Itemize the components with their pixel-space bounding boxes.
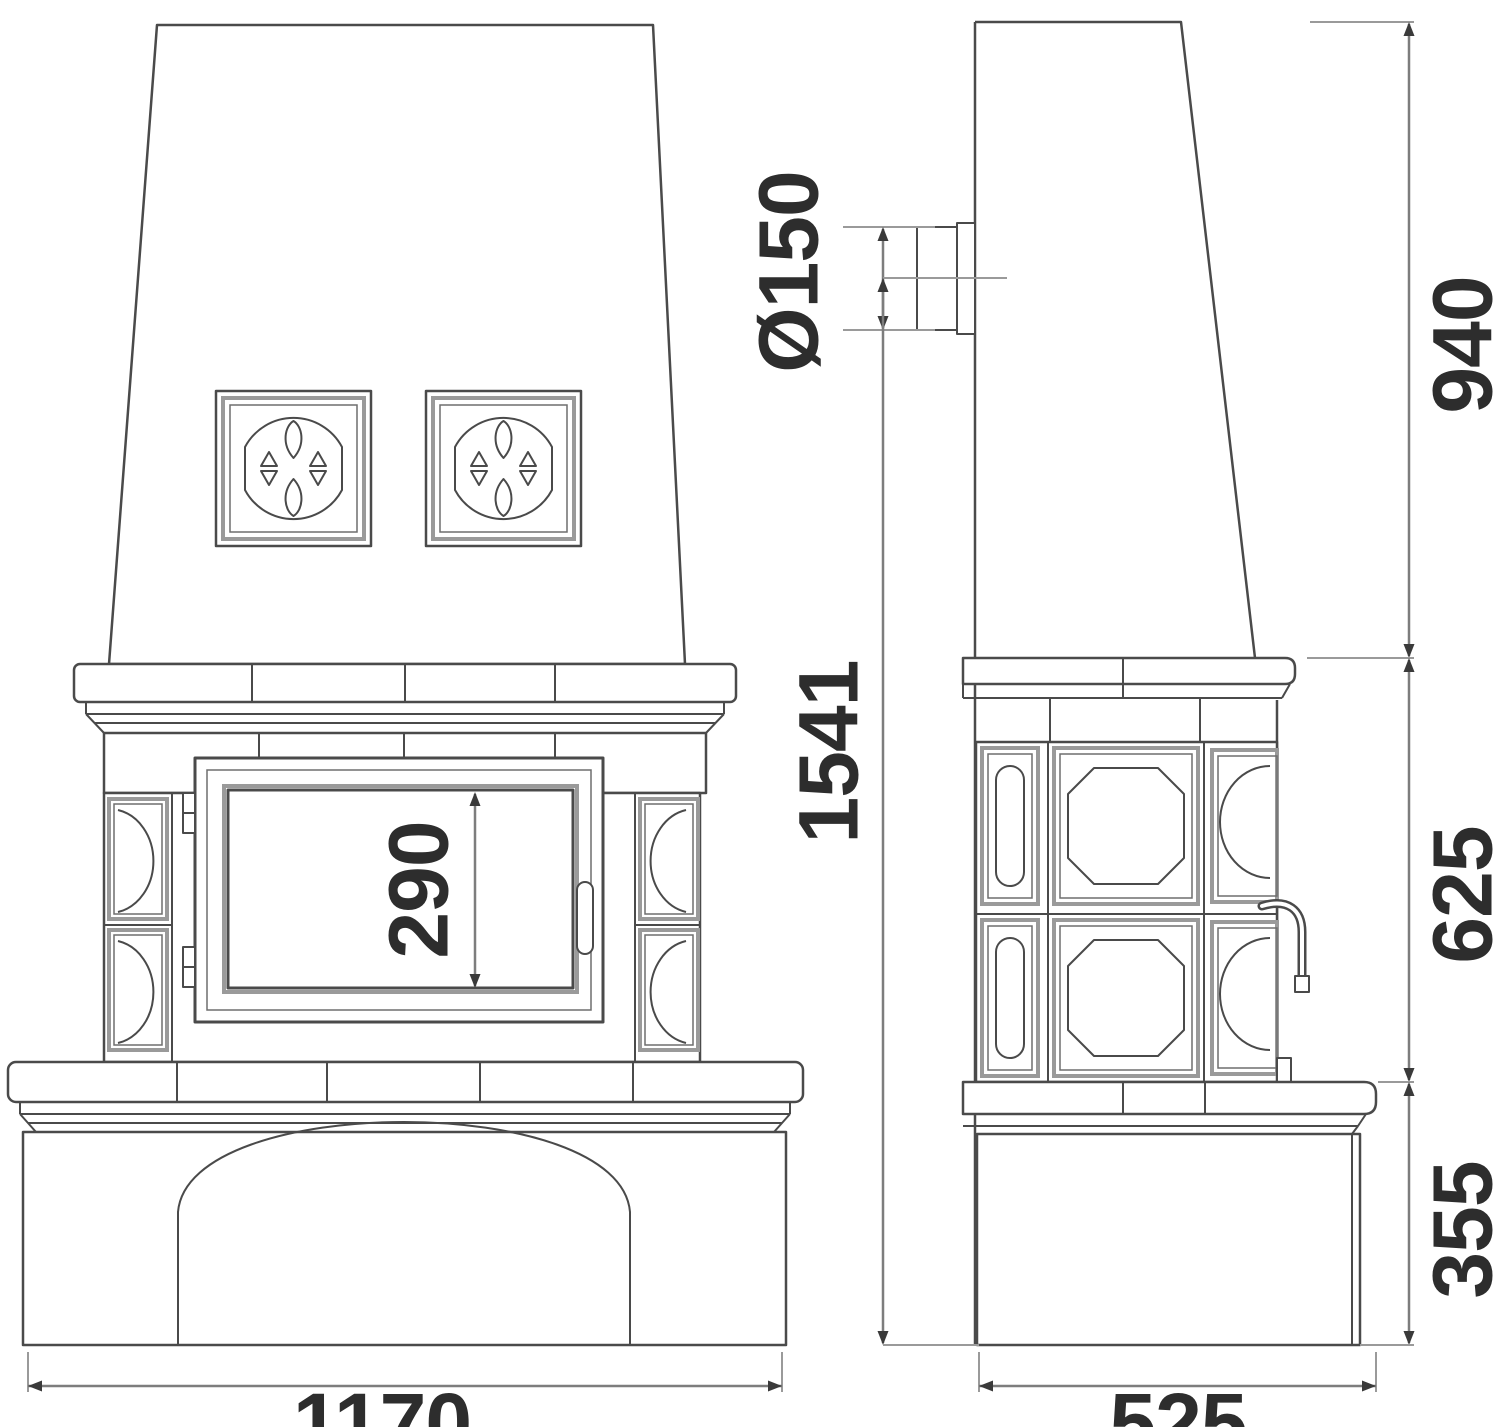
dimension-side-depth: 525 bbox=[979, 1352, 1376, 1427]
front-view: 290 1170 bbox=[8, 25, 803, 1427]
dim-door-height-label: 290 bbox=[371, 821, 465, 958]
dim-front-width-label: 1170 bbox=[293, 1376, 471, 1427]
side-chimney-hood bbox=[975, 22, 1255, 658]
dim-flue-diameter-label: Ø150 bbox=[741, 171, 835, 373]
front-base bbox=[23, 1122, 786, 1345]
dim-base-height-label: 355 bbox=[1415, 1161, 1500, 1298]
dimension-middle-height: 625 bbox=[1307, 658, 1500, 1082]
dimension-total-height: 1541 bbox=[781, 278, 1007, 1345]
rosette-tile-left bbox=[216, 391, 371, 546]
dim-upper-height-label: 940 bbox=[1415, 276, 1500, 413]
stove-technical-drawing: 290 1170 bbox=[0, 0, 1500, 1427]
dim-middle-height-label: 625 bbox=[1415, 826, 1500, 963]
dim-side-depth-label: 525 bbox=[1109, 1376, 1246, 1427]
side-plinth bbox=[963, 1082, 1376, 1134]
front-mantel-shelf bbox=[74, 664, 736, 733]
dimension-flue-diameter: Ø150 bbox=[741, 171, 935, 373]
rosette-tile-right bbox=[426, 391, 581, 546]
stove-technical-drawing-page: 290 1170 bbox=[0, 0, 1500, 1427]
side-view: 525 bbox=[917, 22, 1376, 1427]
dim-total-height-label: 1541 bbox=[781, 661, 875, 844]
side-tile-grid bbox=[976, 742, 1277, 1082]
side-mantel-shelf bbox=[963, 658, 1295, 698]
side-base bbox=[977, 1134, 1360, 1345]
door-handle-front bbox=[577, 882, 593, 954]
side-bottom-bracket bbox=[1277, 1058, 1291, 1082]
dimension-upper-height: 940 bbox=[1310, 22, 1500, 658]
dimension-front-width: 1170 bbox=[28, 1352, 782, 1427]
front-chimney-hood bbox=[109, 25, 685, 664]
dimension-base-height: 355 bbox=[1360, 1082, 1500, 1345]
